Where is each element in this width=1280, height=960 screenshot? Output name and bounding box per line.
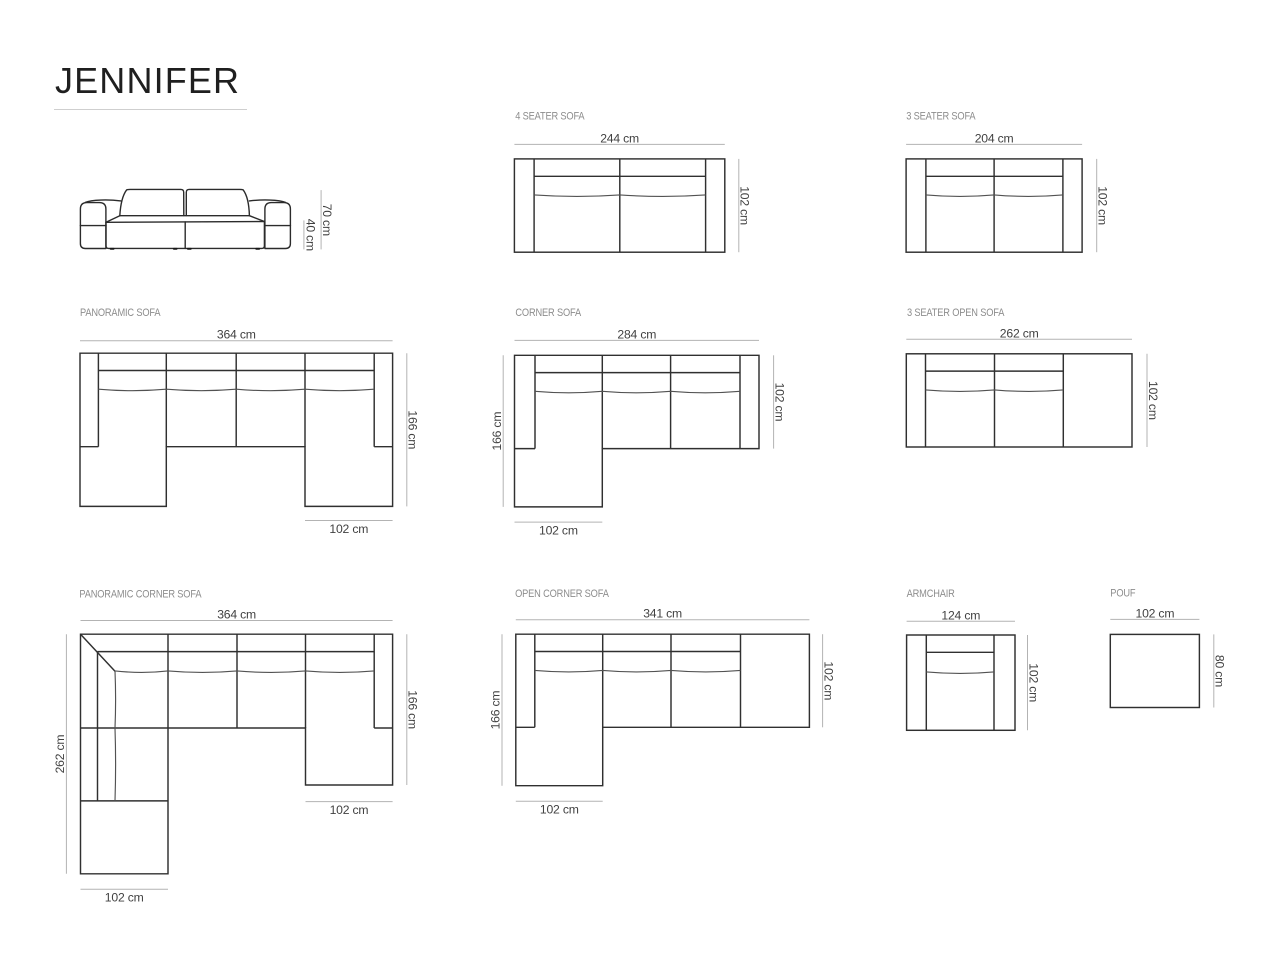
svg-text:102 cm: 102 cm (772, 383, 786, 422)
svg-text:POUF: POUF (1110, 588, 1135, 600)
svg-text:102 cm: 102 cm (105, 891, 144, 905)
svg-text:3 SEATER SOFA: 3 SEATER SOFA (906, 111, 976, 123)
svg-text:PANORAMIC CORNER SOFA: PANORAMIC CORNER SOFA (79, 589, 201, 601)
svg-text:102 cm: 102 cm (539, 524, 578, 538)
svg-text:364 cm: 364 cm (217, 608, 256, 622)
svg-text:70 cm: 70 cm (320, 204, 334, 236)
svg-text:4 SEATER SOFA: 4 SEATER SOFA (515, 111, 585, 123)
svg-text:166 cm: 166 cm (406, 410, 420, 449)
svg-text:JENNIFER: JENNIFER (55, 60, 240, 101)
svg-text:244 cm: 244 cm (600, 131, 639, 145)
svg-text:284 cm: 284 cm (617, 327, 656, 341)
svg-text:102 cm: 102 cm (1136, 606, 1175, 620)
svg-text:102 cm: 102 cm (329, 522, 368, 536)
svg-text:ARMCHAIR: ARMCHAIR (907, 588, 955, 600)
svg-text:102 cm: 102 cm (1026, 663, 1040, 702)
svg-text:166 cm: 166 cm (490, 412, 504, 451)
svg-text:341 cm: 341 cm (643, 607, 682, 621)
svg-text:102 cm: 102 cm (1096, 186, 1110, 225)
svg-text:40 cm: 40 cm (303, 219, 317, 251)
svg-text:204 cm: 204 cm (975, 131, 1014, 145)
svg-text:262 cm: 262 cm (53, 735, 67, 774)
svg-text:364 cm: 364 cm (217, 328, 256, 342)
svg-text:OPEN CORNER SOFA: OPEN CORNER SOFA (515, 588, 609, 600)
svg-text:80 cm: 80 cm (1213, 655, 1227, 687)
svg-text:102 cm: 102 cm (330, 803, 369, 817)
svg-text:102 cm: 102 cm (738, 186, 752, 225)
svg-text:PANORAMIC SOFA: PANORAMIC SOFA (80, 307, 161, 319)
svg-text:102 cm: 102 cm (821, 661, 835, 700)
svg-text:166 cm: 166 cm (406, 690, 420, 729)
svg-text:262 cm: 262 cm (1000, 326, 1039, 340)
svg-text:166 cm: 166 cm (489, 691, 503, 730)
svg-text:3 SEATER OPEN SOFA: 3 SEATER OPEN SOFA (907, 307, 1005, 319)
svg-text:102 cm: 102 cm (540, 803, 579, 817)
svg-text:124 cm: 124 cm (941, 608, 980, 622)
svg-text:CORNER SOFA: CORNER SOFA (515, 307, 581, 319)
svg-text:102 cm: 102 cm (1146, 381, 1160, 420)
